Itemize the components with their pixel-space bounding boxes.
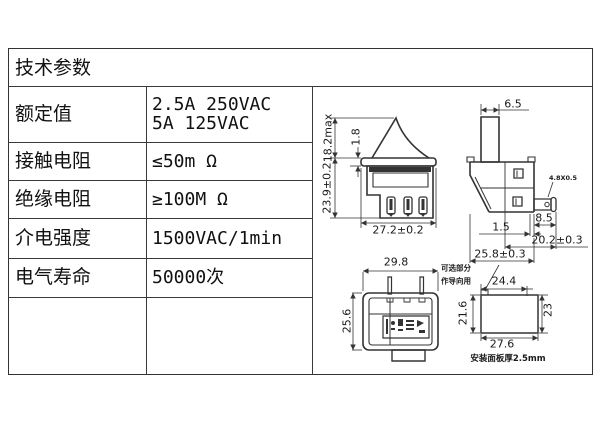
dim-side-step: 1.5 (492, 221, 510, 234)
dim-front-width: 27.2±0.2 (372, 224, 423, 237)
dim-cutout-left: 21.6 (457, 301, 470, 326)
dim-side-body-depth: 25.8±0.3 (474, 248, 525, 261)
dim-side-button-width: 6.5 (504, 98, 522, 111)
dim-cutout-top: 24.4 (492, 275, 517, 288)
bottom-view (352, 271, 438, 361)
front-view (330, 118, 436, 228)
cutout-caption: 安装面板厚2.5mm (470, 352, 545, 364)
dim-cutout-bottom: 27.6 (490, 338, 515, 351)
datasheet-page: 技术参数 额定值 接触电阻 绝缘电阻 介电强度 电气寿命 2.5A 250VAC… (0, 0, 600, 424)
dim-front-body-height: 23.9±0.2 (321, 162, 334, 213)
dim-bottom-width: 29.8 (384, 256, 409, 269)
dim-front-bezel: 1.8 (350, 128, 363, 146)
cutout-note-line1: 可选部分 (441, 263, 471, 274)
dim-side-depth-tip: 20.2±0.3 (531, 234, 582, 247)
dim-side-terminal-len: 8.5 (535, 212, 553, 225)
dim-side-terminal: 4.8X0.5 (549, 174, 577, 182)
dim-cutout-right: 23 (542, 303, 555, 317)
label-print-marks (386, 319, 425, 334)
dim-front-height-max: 18.2max (322, 114, 335, 162)
dim-bottom-height: 25.6 (341, 309, 354, 334)
cutout-note-line2: 作导向用 (441, 276, 471, 287)
